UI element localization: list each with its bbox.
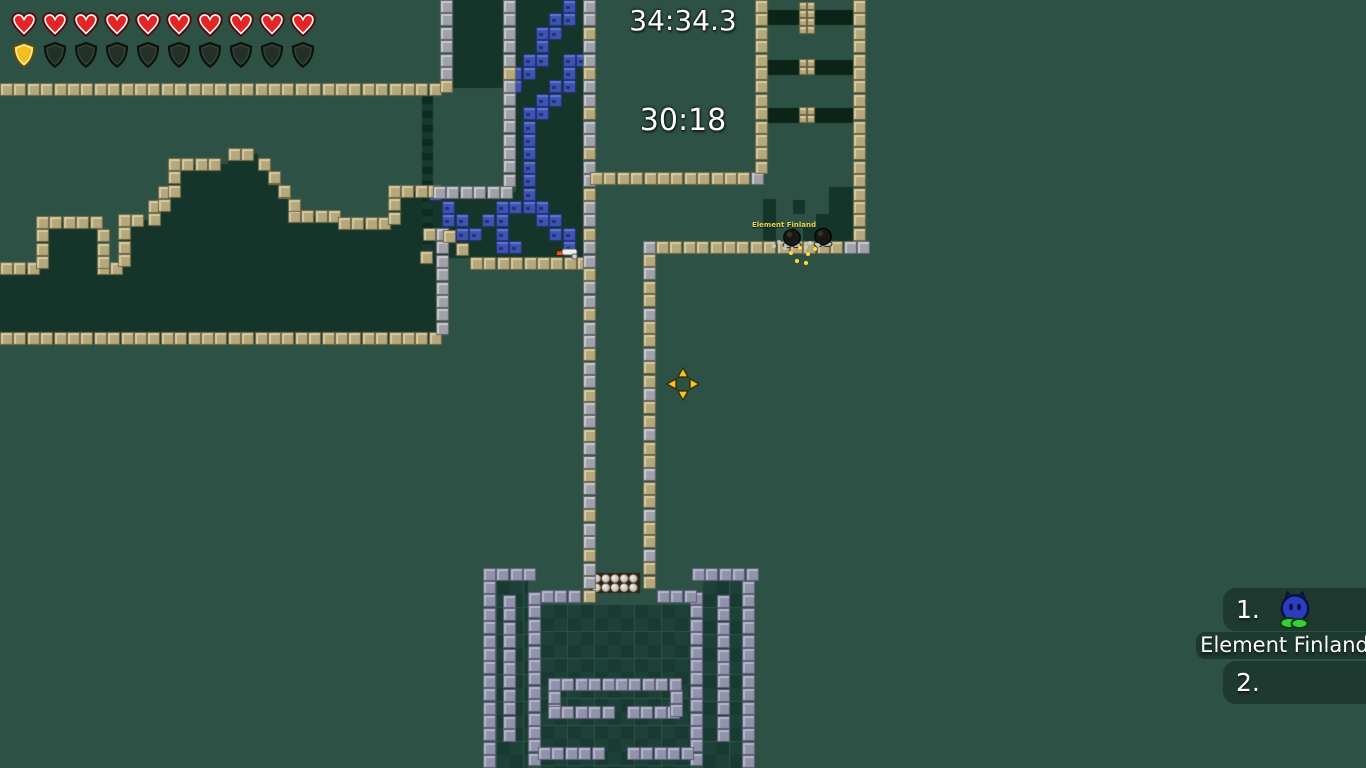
rank-label: 2. (1236, 668, 1270, 697)
armor-shield-empty-icon (196, 41, 224, 73)
gold-spark-icon (789, 251, 793, 255)
rank-label: 1. (1236, 595, 1270, 624)
dust-spark-icon (783, 246, 787, 250)
scoreboard-tee-icon (1275, 590, 1315, 630)
game-timer: 34:34.3 (0, 4, 1366, 37)
armor-shield-empty-icon (289, 41, 317, 73)
gold-spark-icon (795, 259, 799, 263)
dust-spark-icon (777, 240, 781, 244)
armor-shield-empty-icon (258, 41, 286, 73)
dust-spark-icon (816, 243, 820, 247)
dust-spark-icon (804, 245, 808, 249)
armor-shield-empty-icon (72, 41, 100, 73)
gold-spark-icon (806, 252, 810, 256)
armor-shield-empty-icon (165, 41, 193, 73)
scoreboard-row: 1. (1223, 588, 1366, 631)
scoreboard-player-name: Element Finland (1196, 632, 1366, 659)
gold-spark-icon (813, 247, 817, 251)
scoreboard-row: 2. (1223, 661, 1366, 704)
gold-spark-icon (798, 246, 802, 250)
aim-cursor-icon (664, 365, 702, 407)
armor-shield-empty-icon (227, 41, 255, 73)
armor-shield-empty-icon (103, 41, 131, 73)
game-viewport: 34:34.3 30:18 Element Finland 1. (0, 0, 1366, 768)
armor-shield-empty-icon (41, 41, 69, 73)
gold-spark-icon (804, 261, 808, 265)
armor-shield-empty-icon (134, 41, 162, 73)
dust-spark-icon (772, 244, 776, 248)
armor-shield-icon (10, 41, 38, 73)
gun-pickup-icon (556, 245, 583, 264)
dust-spark-icon (808, 241, 812, 245)
race-timer: 30:18 (0, 103, 1366, 138)
armor-bar (10, 41, 317, 73)
